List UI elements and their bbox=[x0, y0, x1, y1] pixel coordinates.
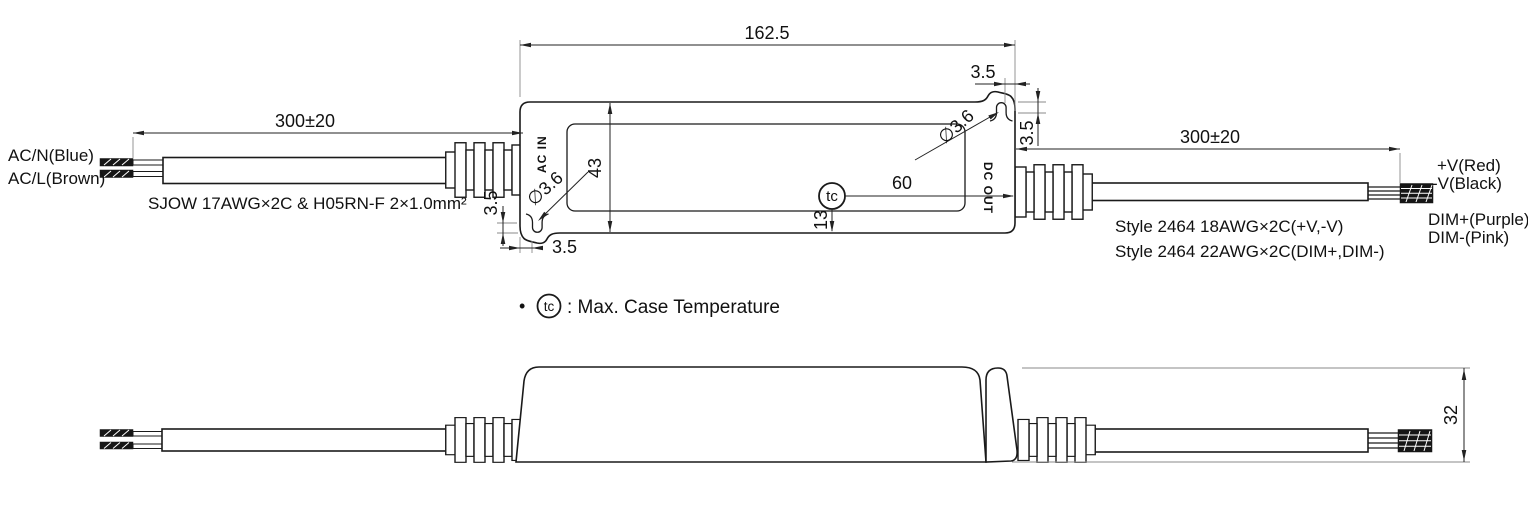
wires bbox=[1368, 187, 1400, 199]
cable-gland bbox=[446, 418, 523, 463]
output-cable-spec-2: Style 2464 22AWG×2C(DIM+,DIM-) bbox=[1115, 242, 1385, 261]
dim-body-length: 162.5 bbox=[520, 23, 1015, 111]
svg-text:32: 32 bbox=[1441, 405, 1461, 425]
tc-note-symbol: tc bbox=[544, 299, 555, 314]
drawing-svg: AC IN DC OUT tc 300±20 162.5 bbox=[0, 0, 1528, 527]
wire bbox=[133, 160, 163, 165]
input-cable bbox=[100, 143, 523, 198]
cable-gland bbox=[1018, 418, 1095, 463]
wire bbox=[133, 444, 162, 449]
cable-jacket bbox=[1085, 429, 1368, 452]
svg-text:43: 43 bbox=[585, 158, 605, 178]
svg-text:300±20: 300±20 bbox=[275, 111, 335, 131]
dimminus-wire-label: DIM-(Pink) bbox=[1428, 228, 1509, 247]
svg-text:162.5: 162.5 bbox=[744, 23, 789, 43]
tc-symbol-text: tc bbox=[826, 188, 838, 205]
svg-text:60: 60 bbox=[892, 173, 912, 193]
top-view: AC IN DC OUT tc 300±20 162.5 bbox=[8, 23, 1528, 261]
svg-text:300±20: 300±20 bbox=[1180, 127, 1240, 147]
dim-tc-offset-y: 13 bbox=[811, 209, 834, 232]
dc-out-label: DC OUT bbox=[981, 162, 995, 214]
dim-ear-left-v: 3.5 bbox=[481, 190, 518, 246]
dim-ear-right-v: 3.5 bbox=[1017, 88, 1046, 146]
cable-gland bbox=[1015, 165, 1092, 220]
case-profile bbox=[516, 367, 986, 462]
output-cable bbox=[1015, 165, 1433, 220]
tc-note-text: : Max. Case Temperature bbox=[567, 297, 780, 318]
dimplus-wire-label: DIM+(Purple) bbox=[1428, 210, 1528, 229]
acn-wire-label: AC/N(Blue) bbox=[8, 146, 94, 165]
svg-text:13: 13 bbox=[811, 210, 831, 230]
side-view: 32 bbox=[100, 367, 1470, 462]
cable-jacket bbox=[1085, 183, 1368, 201]
cable-jacket bbox=[162, 429, 450, 451]
svg-text:3.5: 3.5 bbox=[970, 62, 995, 82]
wire bbox=[133, 432, 162, 437]
cable-gland bbox=[446, 143, 523, 198]
acl-wire-label: AC/L(Brown) bbox=[8, 169, 105, 188]
wire bbox=[133, 172, 163, 177]
vplus-wire-label: +V(Red) bbox=[1437, 156, 1501, 175]
tc-note: • tc : Max. Case Temperature bbox=[519, 295, 780, 319]
note-bullet: • bbox=[519, 296, 525, 316]
input-cable-spec: SJOW 17AWG×2C & H05RN-F 2×1.0mm² bbox=[148, 194, 467, 213]
mechanical-drawing: AC IN DC OUT tc 300±20 162.5 bbox=[0, 0, 1528, 527]
svg-text:3.5: 3.5 bbox=[1017, 120, 1037, 145]
wires bbox=[1368, 433, 1398, 448]
svg-text:3.5: 3.5 bbox=[481, 190, 501, 215]
output-cable-spec-1: Style 2464 18AWG×2C(+V,-V) bbox=[1115, 217, 1343, 236]
cable-jacket bbox=[163, 158, 450, 184]
svg-text:3.5: 3.5 bbox=[552, 237, 577, 257]
vminus-wire-label: -V(Black) bbox=[1432, 174, 1502, 193]
end-cap-profile bbox=[986, 368, 1017, 462]
ac-in-label: AC IN bbox=[535, 135, 549, 173]
